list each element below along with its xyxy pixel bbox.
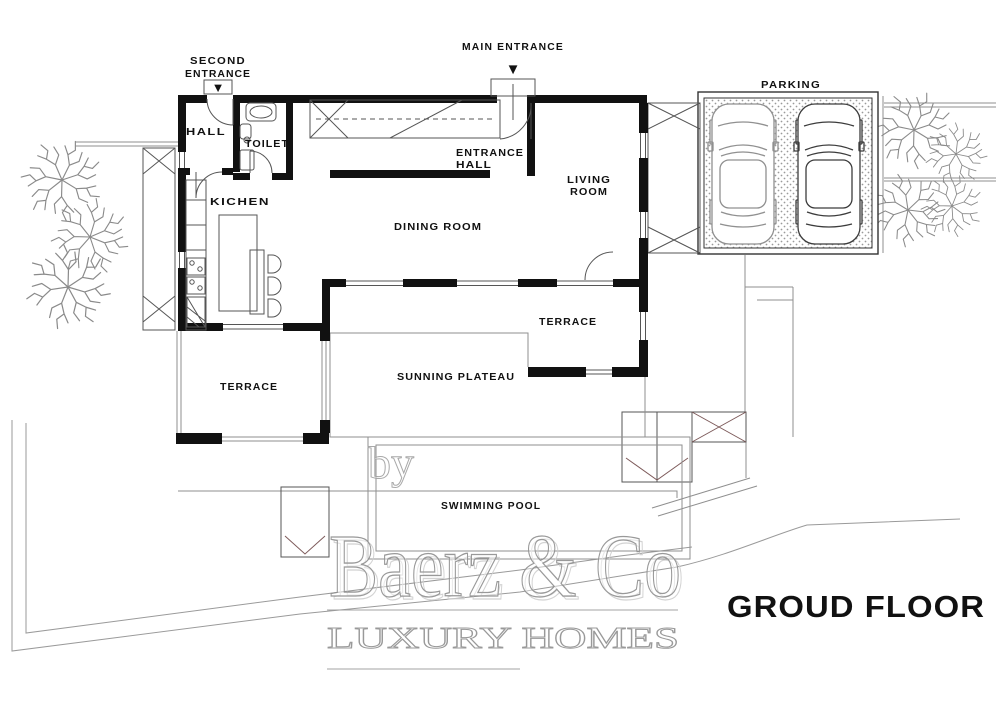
main-entrance-label: MAIN ENTRANCE (462, 41, 564, 53)
car-icon (708, 104, 778, 244)
main-entrance-arrow-icon: ▼ (506, 61, 521, 78)
tree-icon (912, 110, 999, 197)
entrance-hall-label-1: ENTRANCE (456, 147, 524, 159)
stairs-left-of-house (143, 148, 175, 330)
stairs-bottom-right (622, 412, 746, 482)
watermark-brand: Baerz & Co (329, 517, 681, 616)
steps-bottom-left (281, 487, 329, 557)
floor-plan-drawing: MAIN ENTRANCE ▼ SECOND ENTRANCE ▼ PARKIN… (0, 0, 1000, 702)
hall-label: HALL (186, 126, 226, 138)
bar-stool (268, 299, 281, 317)
parking-area (698, 92, 878, 254)
second-entrance-label-1: SECOND (190, 55, 246, 67)
kitchen-counter (186, 180, 206, 330)
kitchen-island (219, 215, 281, 317)
floor-plan-page: MAIN ENTRANCE ▼ SECOND ENTRANCE ▼ PARKIN… (0, 0, 1000, 702)
bar-stool (268, 277, 281, 295)
living-room-label-1: LIVING (567, 174, 611, 186)
living-room-terrace-door-arc (585, 252, 613, 280)
living-room-label-2: ROOM (570, 186, 608, 198)
second-entrance-label-2: ENTRANCE (185, 68, 251, 80)
watermark-by: by (368, 437, 414, 488)
tree-icon (33, 180, 145, 292)
windows (180, 133, 646, 374)
second-entrance-arrow-icon: ▼ (212, 80, 225, 95)
page-title: GROUD FLOOR (727, 589, 985, 624)
watermark: by Baerz & Co Baerz & Co LUXURY HOMES (327, 437, 684, 669)
tree-icon (17, 235, 118, 336)
sunning-plateau-label: SUNNING PLATEAU (397, 371, 515, 383)
car-icon (794, 104, 864, 244)
watermark-tagline: LUXURY HOMES (327, 620, 679, 655)
swimming-pool-label: SWIMMING POOL (441, 501, 541, 512)
kitchen-label: KICHEN (210, 196, 270, 208)
toilet-label: TOILET (245, 138, 289, 150)
entrance-hall-label-2: HALL (456, 159, 492, 171)
dining-room-label: DINING ROOM (394, 221, 482, 233)
hall-door-arc (196, 172, 222, 198)
stairs-right-of-house (648, 103, 700, 253)
terrace-upper-label: TERRACE (539, 316, 597, 328)
toilet-fixtures (240, 103, 276, 170)
parking-label: PARKING (761, 79, 821, 91)
bar-stool (268, 255, 281, 273)
interior-staircase (310, 100, 500, 138)
terrace-lower-label: TERRACE (220, 381, 278, 393)
